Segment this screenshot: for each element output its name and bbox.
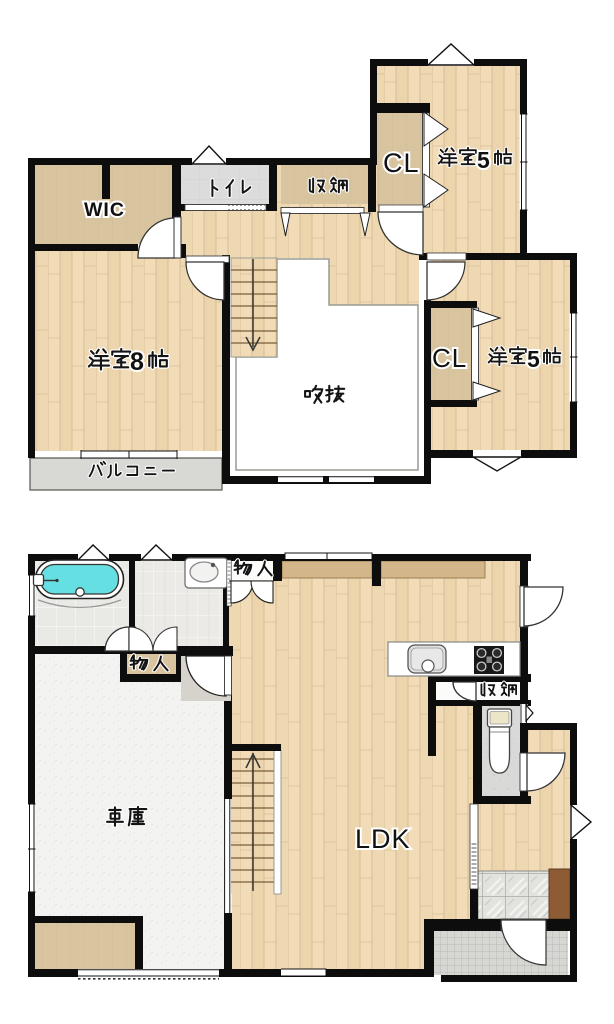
svg-text:5: 5 <box>477 147 491 173</box>
svg-text:CL: CL <box>432 343 467 373</box>
svg-text:LDK: LDK <box>355 824 411 854</box>
svg-text:CL: CL <box>383 148 420 178</box>
svg-text:5: 5 <box>527 346 541 372</box>
svg-text:8: 8 <box>130 348 145 376</box>
svg-text:WIC: WIC <box>84 199 125 221</box>
